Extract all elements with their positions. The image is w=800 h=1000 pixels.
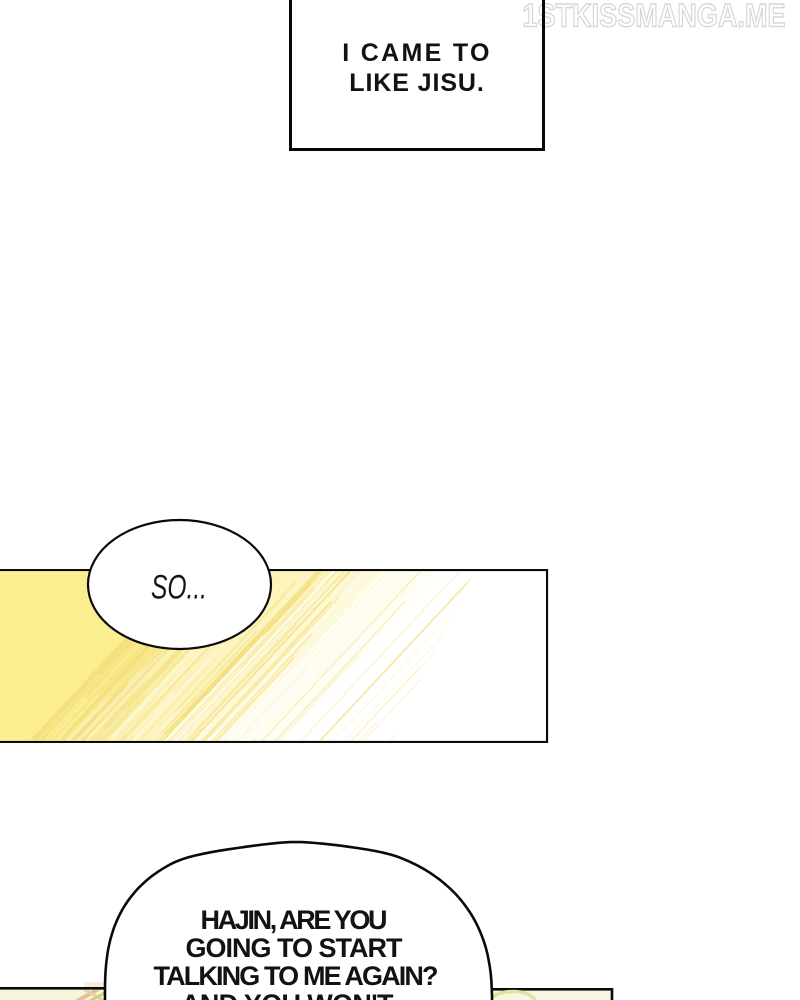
svg-text:TALKING TO ME AGAIN?: TALKING TO ME AGAIN?	[154, 961, 439, 991]
svg-text:1STKISSMANGA.ME: 1STKISSMANGA.ME	[523, 0, 786, 34]
svg-text:HAJIN, ARE YOU: HAJIN, ARE YOU	[201, 905, 388, 935]
svg-text:GOING TO START: GOING TO START	[186, 933, 404, 963]
svg-text:AND YOU WON'T...: AND YOU WON'T...	[181, 989, 411, 1000]
svg-text:SO...: SO...	[151, 569, 207, 607]
